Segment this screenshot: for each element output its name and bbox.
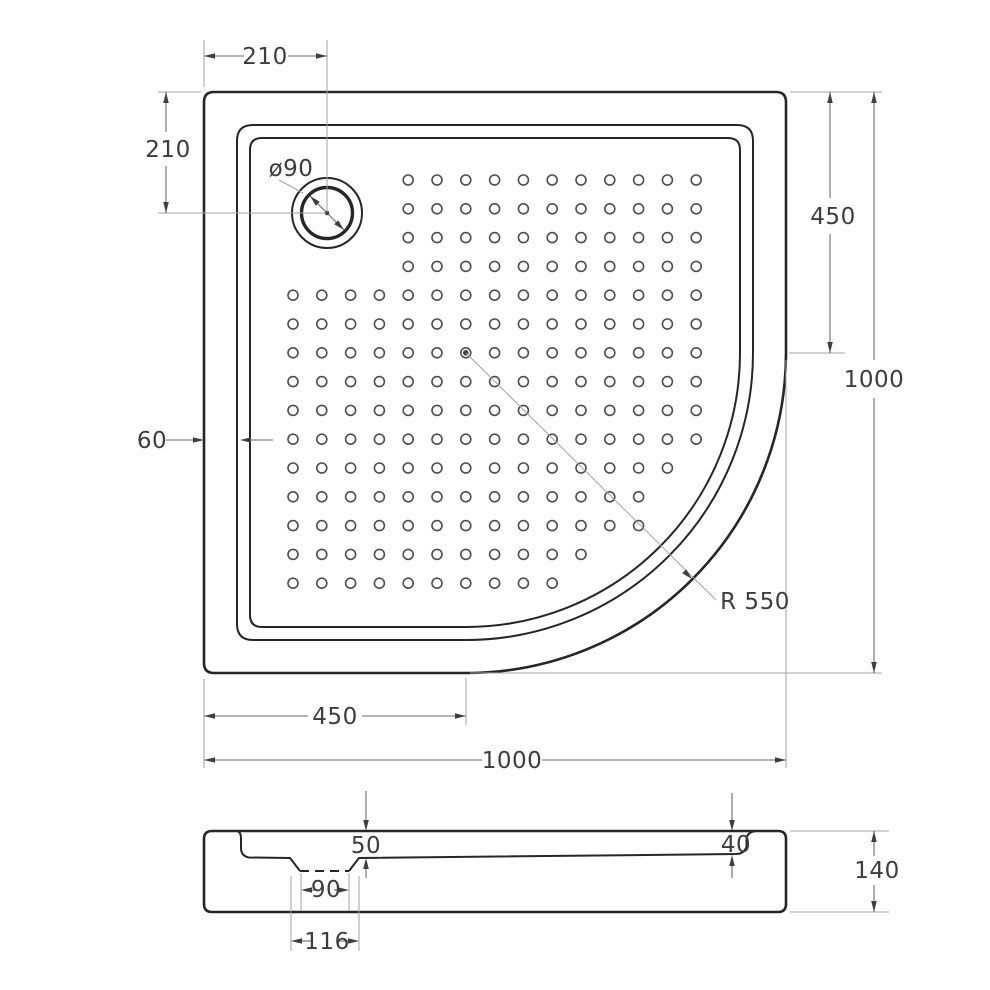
anti-slip-dot — [605, 290, 615, 300]
anti-slip-dot — [662, 204, 672, 214]
arrowhead — [291, 938, 302, 944]
anti-slip-dot — [634, 204, 644, 214]
anti-slip-dot — [691, 204, 701, 214]
anti-slip-dot — [691, 348, 701, 358]
anti-slip-dot — [634, 463, 644, 473]
anti-slip-dot — [662, 405, 672, 415]
anti-slip-dot — [490, 405, 500, 415]
anti-slip-dot — [691, 175, 701, 185]
anti-slip-dot — [432, 405, 442, 415]
anti-slip-dot — [346, 578, 356, 588]
top-view: 210 210 ø90 60 450 1000 450 1000 R 550 — [137, 40, 904, 774]
anti-slip-dot — [662, 377, 672, 387]
anti-slip-dot — [605, 348, 615, 358]
anti-slip-dot — [432, 492, 442, 502]
anti-slip-dot — [317, 377, 327, 387]
anti-slip-dot — [346, 521, 356, 531]
dim-bottom-straight-label: 450 — [312, 704, 357, 730]
dim-drain-diameter-label: ø90 — [269, 156, 314, 182]
anti-slip-dot — [461, 492, 471, 502]
anti-slip-dot — [547, 549, 557, 559]
arrowhead — [871, 901, 877, 912]
arrowhead — [871, 831, 877, 842]
anti-slip-dot — [691, 377, 701, 387]
anti-slip-dot — [605, 492, 615, 502]
anti-slip-dot — [374, 578, 384, 588]
anti-slip-dot — [490, 290, 500, 300]
anti-slip-dot — [288, 578, 298, 588]
anti-slip-dot — [461, 290, 471, 300]
anti-slip-dot — [374, 463, 384, 473]
anti-slip-dot — [518, 549, 528, 559]
anti-slip-dot — [576, 405, 586, 415]
anti-slip-dot — [288, 319, 298, 329]
anti-slip-dot — [432, 348, 442, 358]
anti-slip-dot — [634, 492, 644, 502]
anti-slip-dot — [374, 290, 384, 300]
anti-slip-dot — [288, 434, 298, 444]
anti-slip-dot — [634, 319, 644, 329]
section-basin-profile — [237, 831, 756, 871]
dim-rim-width-label: 60 — [137, 428, 167, 454]
anti-slip-dot — [634, 521, 644, 531]
dim-recess-top-width-label: 116 — [304, 929, 349, 955]
anti-slip-dot — [432, 549, 442, 559]
anti-slip-dot — [432, 319, 442, 329]
anti-slip-dot — [662, 319, 672, 329]
anti-slip-dot — [374, 377, 384, 387]
dim-overall-width-label: 1000 — [482, 748, 543, 774]
anti-slip-dot — [547, 261, 557, 271]
anti-slip-dot — [634, 377, 644, 387]
arrowhead — [163, 92, 169, 103]
anti-slip-dot — [576, 319, 586, 329]
anti-slip-dot — [403, 204, 413, 214]
anti-slip-dot — [403, 521, 413, 531]
anti-slip-dot — [605, 261, 615, 271]
anti-slip-dot — [605, 319, 615, 329]
anti-slip-dot — [634, 233, 644, 243]
anti-slip-dot — [576, 549, 586, 559]
anti-slip-dot — [374, 319, 384, 329]
anti-slip-dot — [461, 434, 471, 444]
dim-overall-depth-label: 1000 — [844, 367, 905, 393]
anti-slip-dot — [461, 204, 471, 214]
anti-slip-dot — [432, 233, 442, 243]
anti-slip-dot — [518, 348, 528, 358]
anti-slip-dot — [547, 463, 557, 473]
anti-slip-dot — [490, 492, 500, 502]
anti-slip-dot — [518, 578, 528, 588]
anti-slip-dot — [490, 578, 500, 588]
anti-slip-dot — [403, 290, 413, 300]
anti-slip-dot — [518, 261, 528, 271]
anti-slip-dot — [374, 549, 384, 559]
arrowhead — [193, 437, 204, 443]
anti-slip-dot — [288, 290, 298, 300]
anti-slip-dot — [403, 233, 413, 243]
anti-slip-dot — [547, 290, 557, 300]
anti-slip-dot — [547, 233, 557, 243]
anti-slip-dot — [634, 348, 644, 358]
anti-slip-dot — [634, 261, 644, 271]
anti-slip-dot — [288, 348, 298, 358]
anti-slip-dot — [576, 434, 586, 444]
anti-slip-dot — [576, 492, 586, 502]
anti-slip-dot — [403, 463, 413, 473]
dim-depth-at-far-end-label: 40 — [721, 832, 751, 858]
anti-slip-dot — [518, 463, 528, 473]
anti-slip-dot — [317, 290, 327, 300]
dim-drain-offset-horizontal-label: 210 — [242, 44, 287, 70]
anti-slip-dot — [662, 348, 672, 358]
anti-slip-dot — [374, 521, 384, 531]
anti-slip-dot — [461, 233, 471, 243]
arrowhead — [827, 92, 833, 103]
anti-slip-dot — [605, 377, 615, 387]
arrowhead — [455, 713, 466, 719]
anti-slip-dot — [662, 233, 672, 243]
anti-slip-dot — [346, 434, 356, 444]
arrowhead — [163, 202, 169, 213]
anti-slip-dot — [317, 463, 327, 473]
anti-slip-dot — [662, 434, 672, 444]
anti-slip-dot — [461, 521, 471, 531]
anti-slip-dot — [346, 377, 356, 387]
anti-slip-dot — [461, 463, 471, 473]
anti-slip-dot — [432, 290, 442, 300]
anti-slip-dot — [403, 319, 413, 329]
arrowhead — [204, 757, 215, 763]
anti-slip-dot — [490, 549, 500, 559]
anti-slip-dot — [490, 463, 500, 473]
tray-rim-inner-line — [250, 138, 740, 627]
anti-slip-dot — [576, 261, 586, 271]
anti-slip-dot — [634, 175, 644, 185]
anti-slip-dot — [317, 521, 327, 531]
anti-slip-dot — [461, 319, 471, 329]
anti-slip-dot — [490, 175, 500, 185]
anti-slip-dot — [547, 521, 557, 531]
anti-slip-dot — [432, 521, 442, 531]
anti-slip-dot — [576, 204, 586, 214]
technical-drawing-canvas: 210 210 ø90 60 450 1000 450 1000 R 550 — [0, 0, 990, 990]
anti-slip-dot — [317, 578, 327, 588]
anti-slip-dot — [288, 492, 298, 502]
anti-slip-dot — [576, 233, 586, 243]
anti-slip-dot — [547, 578, 557, 588]
anti-slip-dot — [346, 549, 356, 559]
anti-slip-dot — [576, 175, 586, 185]
anti-slip-dot — [461, 405, 471, 415]
section-view: 50 40 90 116 140 — [204, 791, 900, 955]
anti-slip-dot — [605, 463, 615, 473]
anti-slip-dot — [403, 175, 413, 185]
anti-slip-dot — [518, 492, 528, 502]
anti-slip-dot — [461, 261, 471, 271]
anti-slip-dot — [346, 290, 356, 300]
anti-slip-dot — [288, 463, 298, 473]
dim-depth-at-drain-label: 50 — [351, 833, 381, 859]
anti-slip-dot — [547, 348, 557, 358]
anti-slip-dot — [605, 405, 615, 415]
anti-slip-dot — [374, 434, 384, 444]
anti-slip-dot — [691, 290, 701, 300]
anti-slip-dot — [691, 405, 701, 415]
anti-slip-dot — [691, 261, 701, 271]
anti-slip-dot — [317, 319, 327, 329]
anti-slip-dot — [490, 434, 500, 444]
anti-slip-dot — [547, 319, 557, 329]
anti-slip-dot — [576, 290, 586, 300]
anti-slip-dot — [605, 233, 615, 243]
anti-slip-dot — [605, 175, 615, 185]
anti-slip-dot — [605, 521, 615, 531]
anti-slip-dot — [346, 463, 356, 473]
anti-slip-dot — [432, 377, 442, 387]
anti-slip-dot — [490, 319, 500, 329]
anti-slip-dot — [662, 175, 672, 185]
anti-slip-dot — [518, 319, 528, 329]
anti-slip-dot — [317, 492, 327, 502]
anti-slip-dot — [403, 549, 413, 559]
anti-slip-dot — [403, 434, 413, 444]
anti-slip-dot — [317, 434, 327, 444]
anti-slip-dot — [547, 434, 557, 444]
anti-slip-dot — [634, 290, 644, 300]
anti-slip-dot — [518, 521, 528, 531]
arrowhead — [729, 820, 735, 831]
anti-slip-dot — [403, 261, 413, 271]
anti-slip-dot — [374, 492, 384, 502]
anti-slip-dot — [691, 434, 701, 444]
arrowhead — [827, 342, 833, 353]
anti-slip-dot — [576, 348, 586, 358]
anti-slip-dot — [403, 405, 413, 415]
anti-slip-dot — [461, 175, 471, 185]
arrowhead — [871, 662, 877, 673]
anti-slip-dot — [662, 463, 672, 473]
anti-slip-dot — [518, 290, 528, 300]
anti-slip-dot — [461, 377, 471, 387]
anti-slip-dot — [547, 405, 557, 415]
anti-slip-dot — [576, 463, 586, 473]
anti-slip-dot — [432, 175, 442, 185]
anti-slip-dot — [403, 578, 413, 588]
arrowhead — [240, 437, 251, 443]
anti-slip-dot — [288, 405, 298, 415]
anti-slip-dot — [432, 463, 442, 473]
arrowhead — [204, 53, 215, 59]
anti-slip-dot — [662, 290, 672, 300]
anti-slip-dot — [518, 175, 528, 185]
anti-slip-dot — [576, 377, 586, 387]
anti-slip-dot — [432, 434, 442, 444]
anti-slip-dot — [288, 521, 298, 531]
anti-slip-dot — [346, 405, 356, 415]
dim-recess-bottom-width-label: 90 — [311, 877, 341, 903]
anti-slip-dot — [605, 204, 615, 214]
anti-slip-dot — [374, 405, 384, 415]
arrowhead — [316, 53, 327, 59]
anti-slip-dot — [288, 549, 298, 559]
anti-slip-dot — [547, 377, 557, 387]
anti-slip-dot — [547, 175, 557, 185]
arrowhead — [204, 713, 215, 719]
arrowhead — [363, 858, 369, 869]
anti-slip-dot — [518, 434, 528, 444]
arrowhead — [775, 757, 786, 763]
anti-slip-dot — [317, 549, 327, 559]
anti-slip-dot — [634, 405, 644, 415]
anti-slip-dot — [490, 204, 500, 214]
anti-slip-dot — [490, 261, 500, 271]
anti-slip-dot — [547, 204, 557, 214]
anti-slip-dot — [403, 377, 413, 387]
anti-slip-dot — [518, 377, 528, 387]
anti-slip-dot — [490, 348, 500, 358]
anti-slip-dot — [317, 405, 327, 415]
anti-slip-dot — [634, 434, 644, 444]
anti-slip-dot — [547, 492, 557, 502]
anti-slip-dot — [490, 233, 500, 243]
arrowhead — [363, 820, 369, 831]
anti-slip-dot — [461, 578, 471, 588]
dim-corner-radius-label: R 550 — [720, 589, 790, 615]
anti-slip-dot — [317, 348, 327, 358]
anti-slip-dot — [518, 204, 528, 214]
anti-slip-dot — [518, 233, 528, 243]
anti-slip-dot — [461, 549, 471, 559]
radius-arrowhead — [682, 569, 692, 579]
anti-slip-dot — [432, 261, 442, 271]
arrowhead — [871, 92, 877, 103]
radius-leader-line — [466, 353, 716, 600]
anti-slip-dot — [490, 521, 500, 531]
anti-slip-dot — [346, 492, 356, 502]
anti-slip-dot — [432, 578, 442, 588]
anti-slip-dot — [605, 434, 615, 444]
anti-slip-dot — [662, 261, 672, 271]
anti-slip-dot — [403, 348, 413, 358]
anti-slip-dot — [691, 233, 701, 243]
anti-slip-dot — [691, 319, 701, 329]
dim-overall-height-label: 140 — [854, 858, 899, 884]
anti-slip-dot — [346, 348, 356, 358]
anti-slip-dot — [403, 492, 413, 502]
dim-right-straight-label: 450 — [810, 204, 855, 230]
anti-slip-dot — [288, 377, 298, 387]
dim-drain-offset-vertical-label: 210 — [145, 137, 190, 163]
anti-slip-dot — [346, 319, 356, 329]
anti-slip-dot — [576, 521, 586, 531]
anti-slip-dot — [432, 204, 442, 214]
anti-slip-dot — [374, 348, 384, 358]
